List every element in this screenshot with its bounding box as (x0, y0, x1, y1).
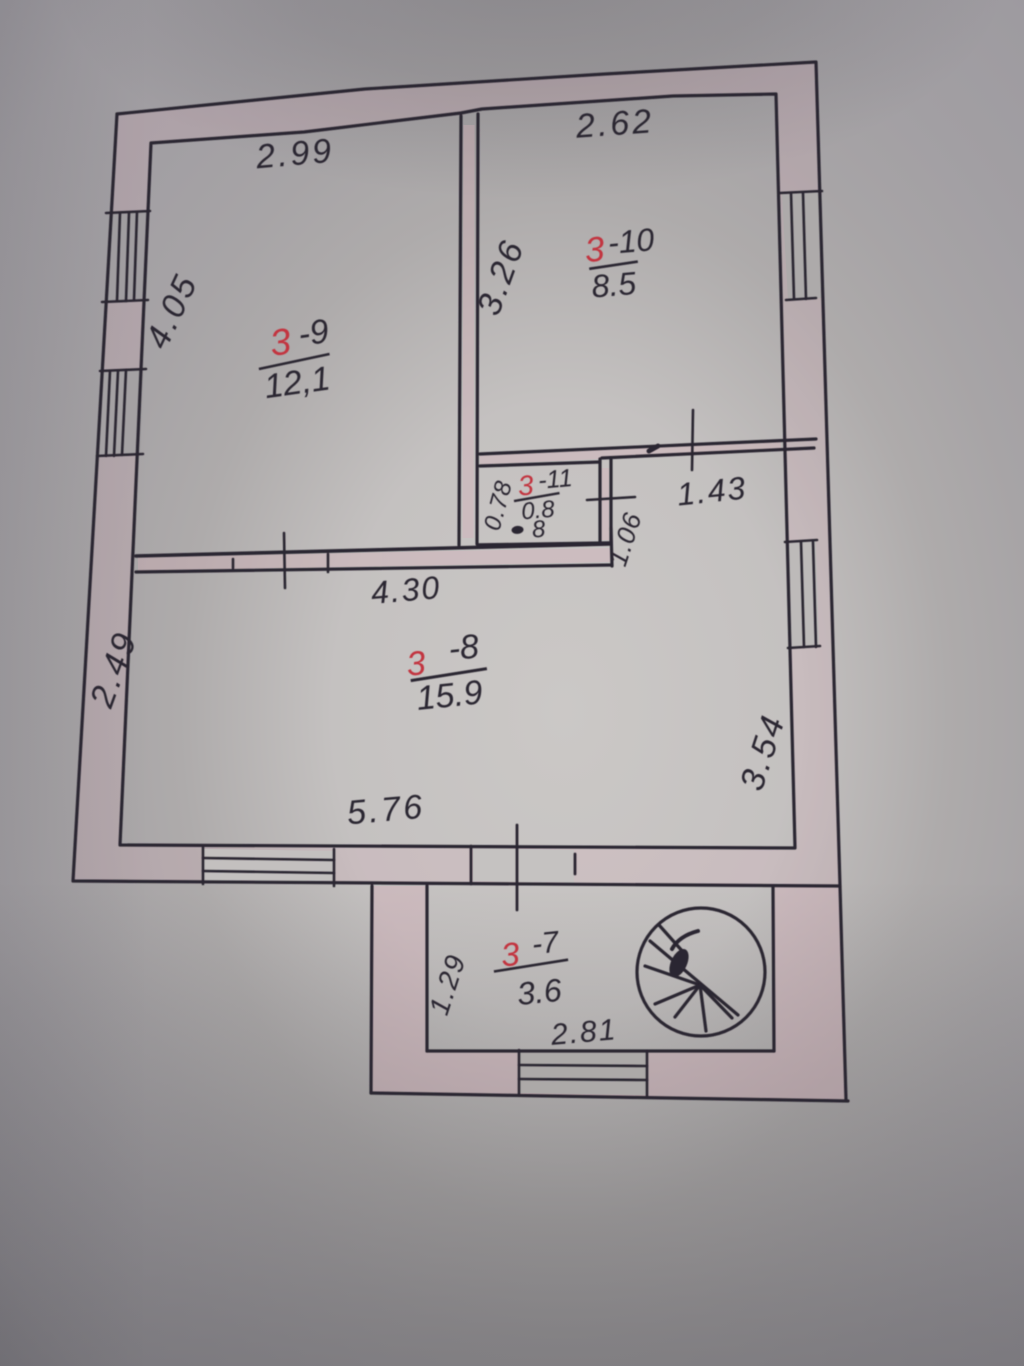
svg-text:4.30: 4.30 (369, 569, 442, 611)
svg-text:3.6: 3.6 (515, 972, 563, 1012)
svg-text:-11: -11 (537, 464, 574, 495)
svg-text:1.43: 1.43 (675, 469, 749, 512)
svg-text:5.76: 5.76 (345, 788, 426, 833)
svg-text:2.62: 2.62 (574, 102, 656, 145)
svg-text:8.5: 8.5 (590, 265, 638, 305)
svg-text:-10: -10 (606, 221, 655, 261)
svg-text:3: 3 (583, 229, 606, 270)
svg-text:2.81: 2.81 (549, 1013, 619, 1052)
svg-text:-9: -9 (296, 312, 331, 354)
svg-text:-8: -8 (447, 627, 481, 668)
svg-text:-7: -7 (530, 926, 561, 962)
svg-text:2.99: 2.99 (253, 132, 335, 177)
svg-text:15.9: 15.9 (415, 673, 485, 718)
